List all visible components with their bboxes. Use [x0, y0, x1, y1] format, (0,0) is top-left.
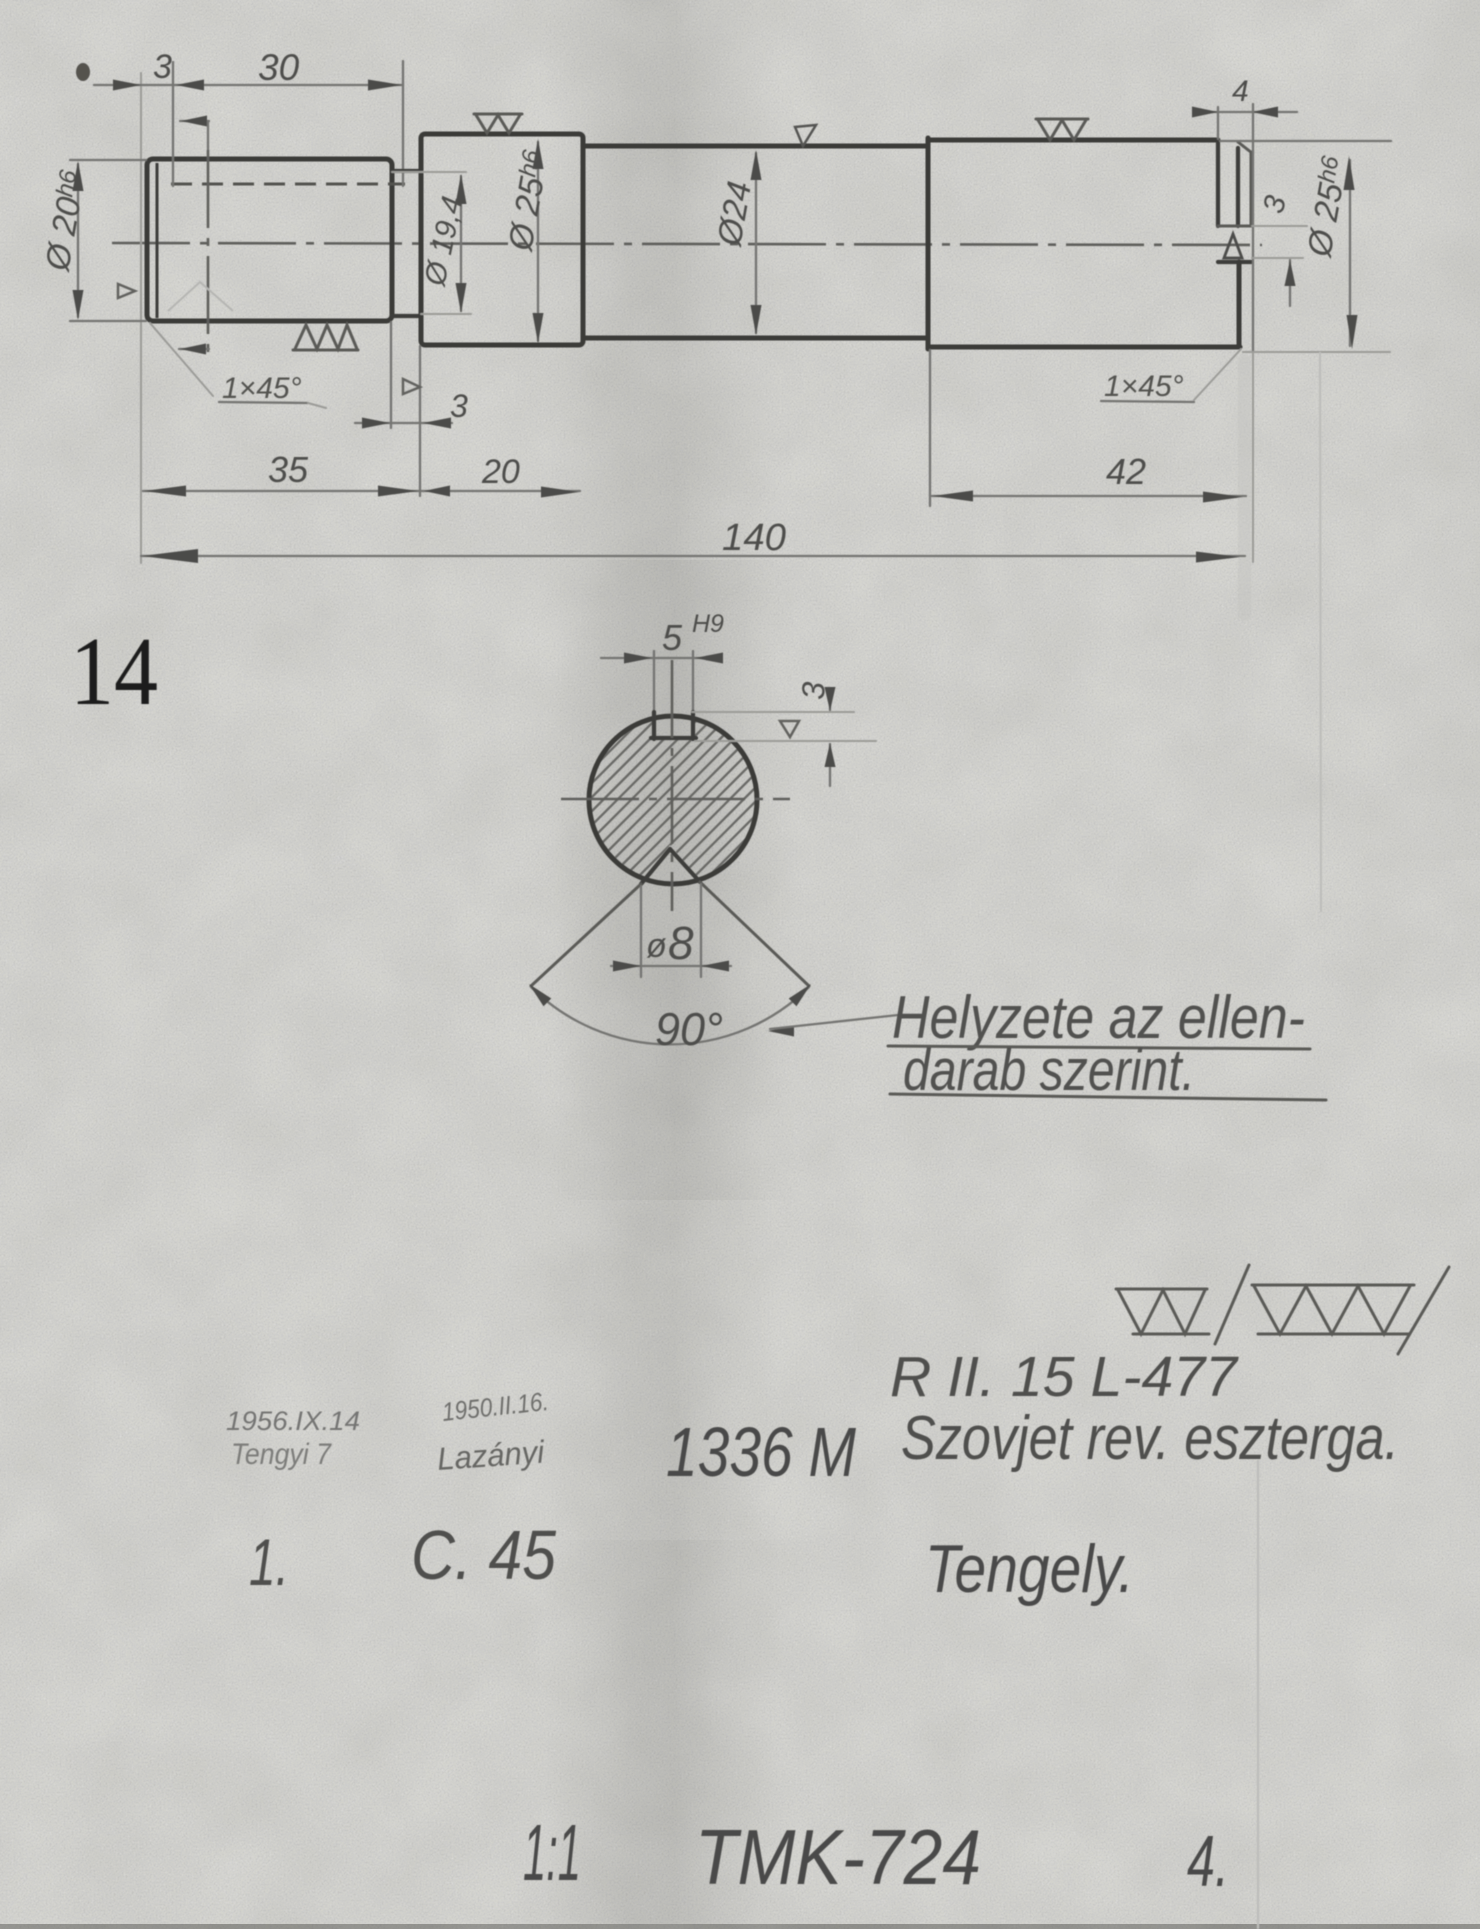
svg-text:darab szerint.: darab szerint.	[903, 1038, 1195, 1103]
svg-text:Tengely.: Tengely.	[925, 1531, 1134, 1607]
svg-text:3: 3	[450, 388, 468, 424]
svg-text:R II. 15 L-477: R II. 15 L-477	[890, 1345, 1239, 1409]
svg-text:5: 5	[662, 617, 683, 658]
svg-text:3: 3	[795, 681, 832, 700]
svg-text:1×45°: 1×45°	[222, 372, 302, 405]
svg-text:90°: 90°	[655, 1003, 723, 1055]
svg-text:1956.IX.14: 1956.IX.14	[226, 1406, 360, 1436]
svg-text:35: 35	[268, 449, 309, 490]
svg-text:1336 M: 1336 M	[666, 1413, 857, 1491]
svg-text:1×45°: 1×45°	[1104, 370, 1184, 403]
svg-text:1.: 1.	[249, 1525, 289, 1599]
svg-text:42: 42	[1106, 451, 1146, 492]
svg-text:8: 8	[668, 917, 694, 969]
svg-text:140: 140	[722, 517, 786, 559]
svg-text:TMK-724: TMK-724	[695, 1813, 981, 1901]
svg-text:H9: H9	[692, 610, 724, 638]
svg-text:3: 3	[153, 48, 172, 86]
svg-text:4: 4	[1232, 75, 1249, 108]
svg-text:4.: 4.	[1187, 1822, 1229, 1902]
svg-text:14: 14	[70, 618, 158, 726]
svg-text:ø: ø	[646, 927, 667, 965]
svg-text:1:1: 1:1	[523, 1808, 581, 1897]
svg-text:20: 20	[481, 453, 520, 491]
svg-text:Lazányi: Lazányi	[436, 1434, 546, 1477]
svg-text:30: 30	[258, 47, 300, 88]
svg-text:C. 45: C. 45	[411, 1516, 557, 1594]
svg-text:Tengyi 7: Tengyi 7	[231, 1438, 332, 1471]
svg-text:Szovjet rev. eszterga.: Szovjet rev. eszterga.	[901, 1404, 1399, 1473]
